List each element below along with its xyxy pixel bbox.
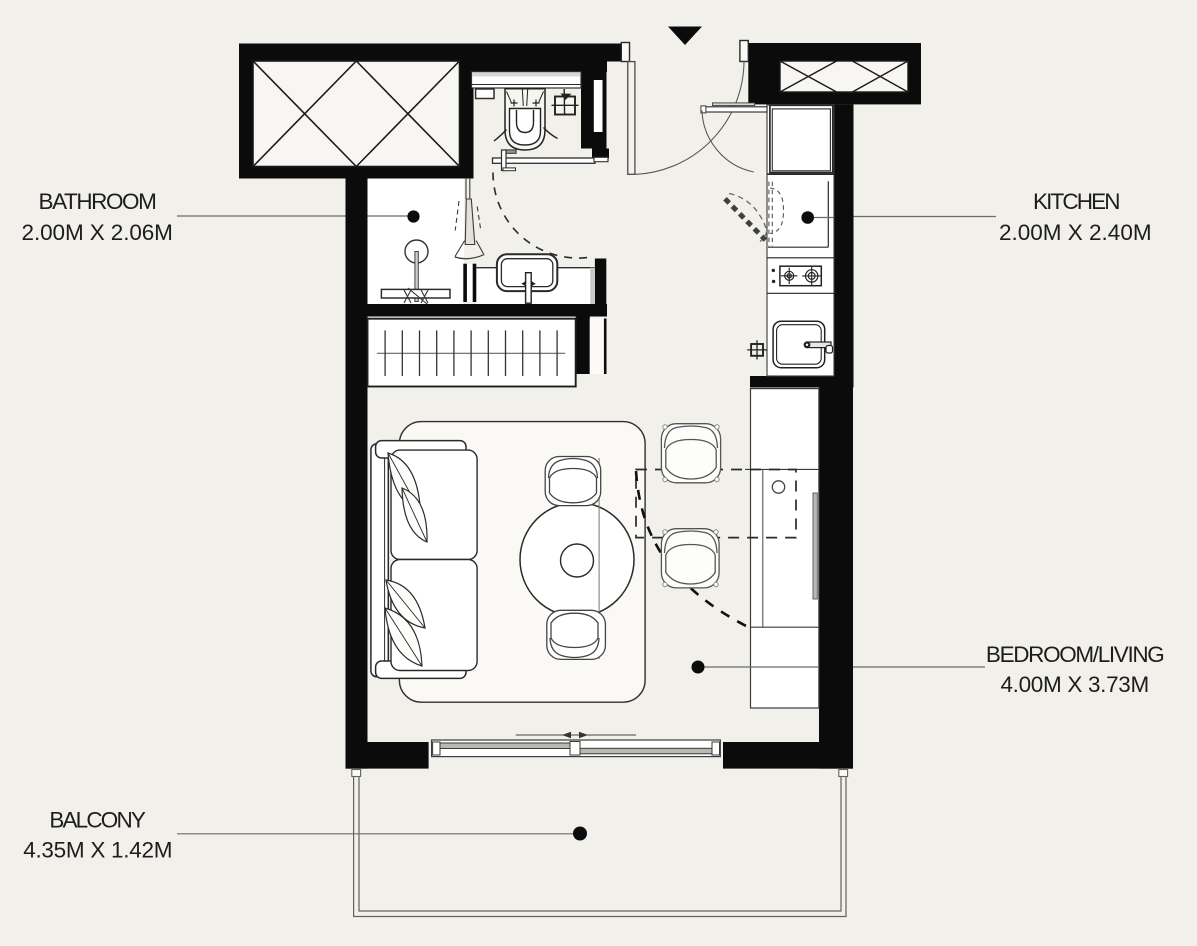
svg-text:4.35M X 1.42M: 4.35M X 1.42M (23, 838, 172, 863)
svg-text:4.00M X 3.73M: 4.00M X 3.73M (1000, 672, 1148, 697)
svg-text:BALCONY: BALCONY (49, 808, 146, 833)
svg-text:2.00M X 2.40M: 2.00M X 2.40M (999, 220, 1152, 245)
svg-text:BATHROOM: BATHROOM (39, 189, 156, 214)
svg-text:KITCHEN: KITCHEN (1033, 189, 1119, 214)
svg-text:2.00M X 2.06M: 2.00M X 2.06M (22, 220, 173, 245)
svg-text:BEDROOM/LIVING: BEDROOM/LIVING (986, 642, 1164, 667)
